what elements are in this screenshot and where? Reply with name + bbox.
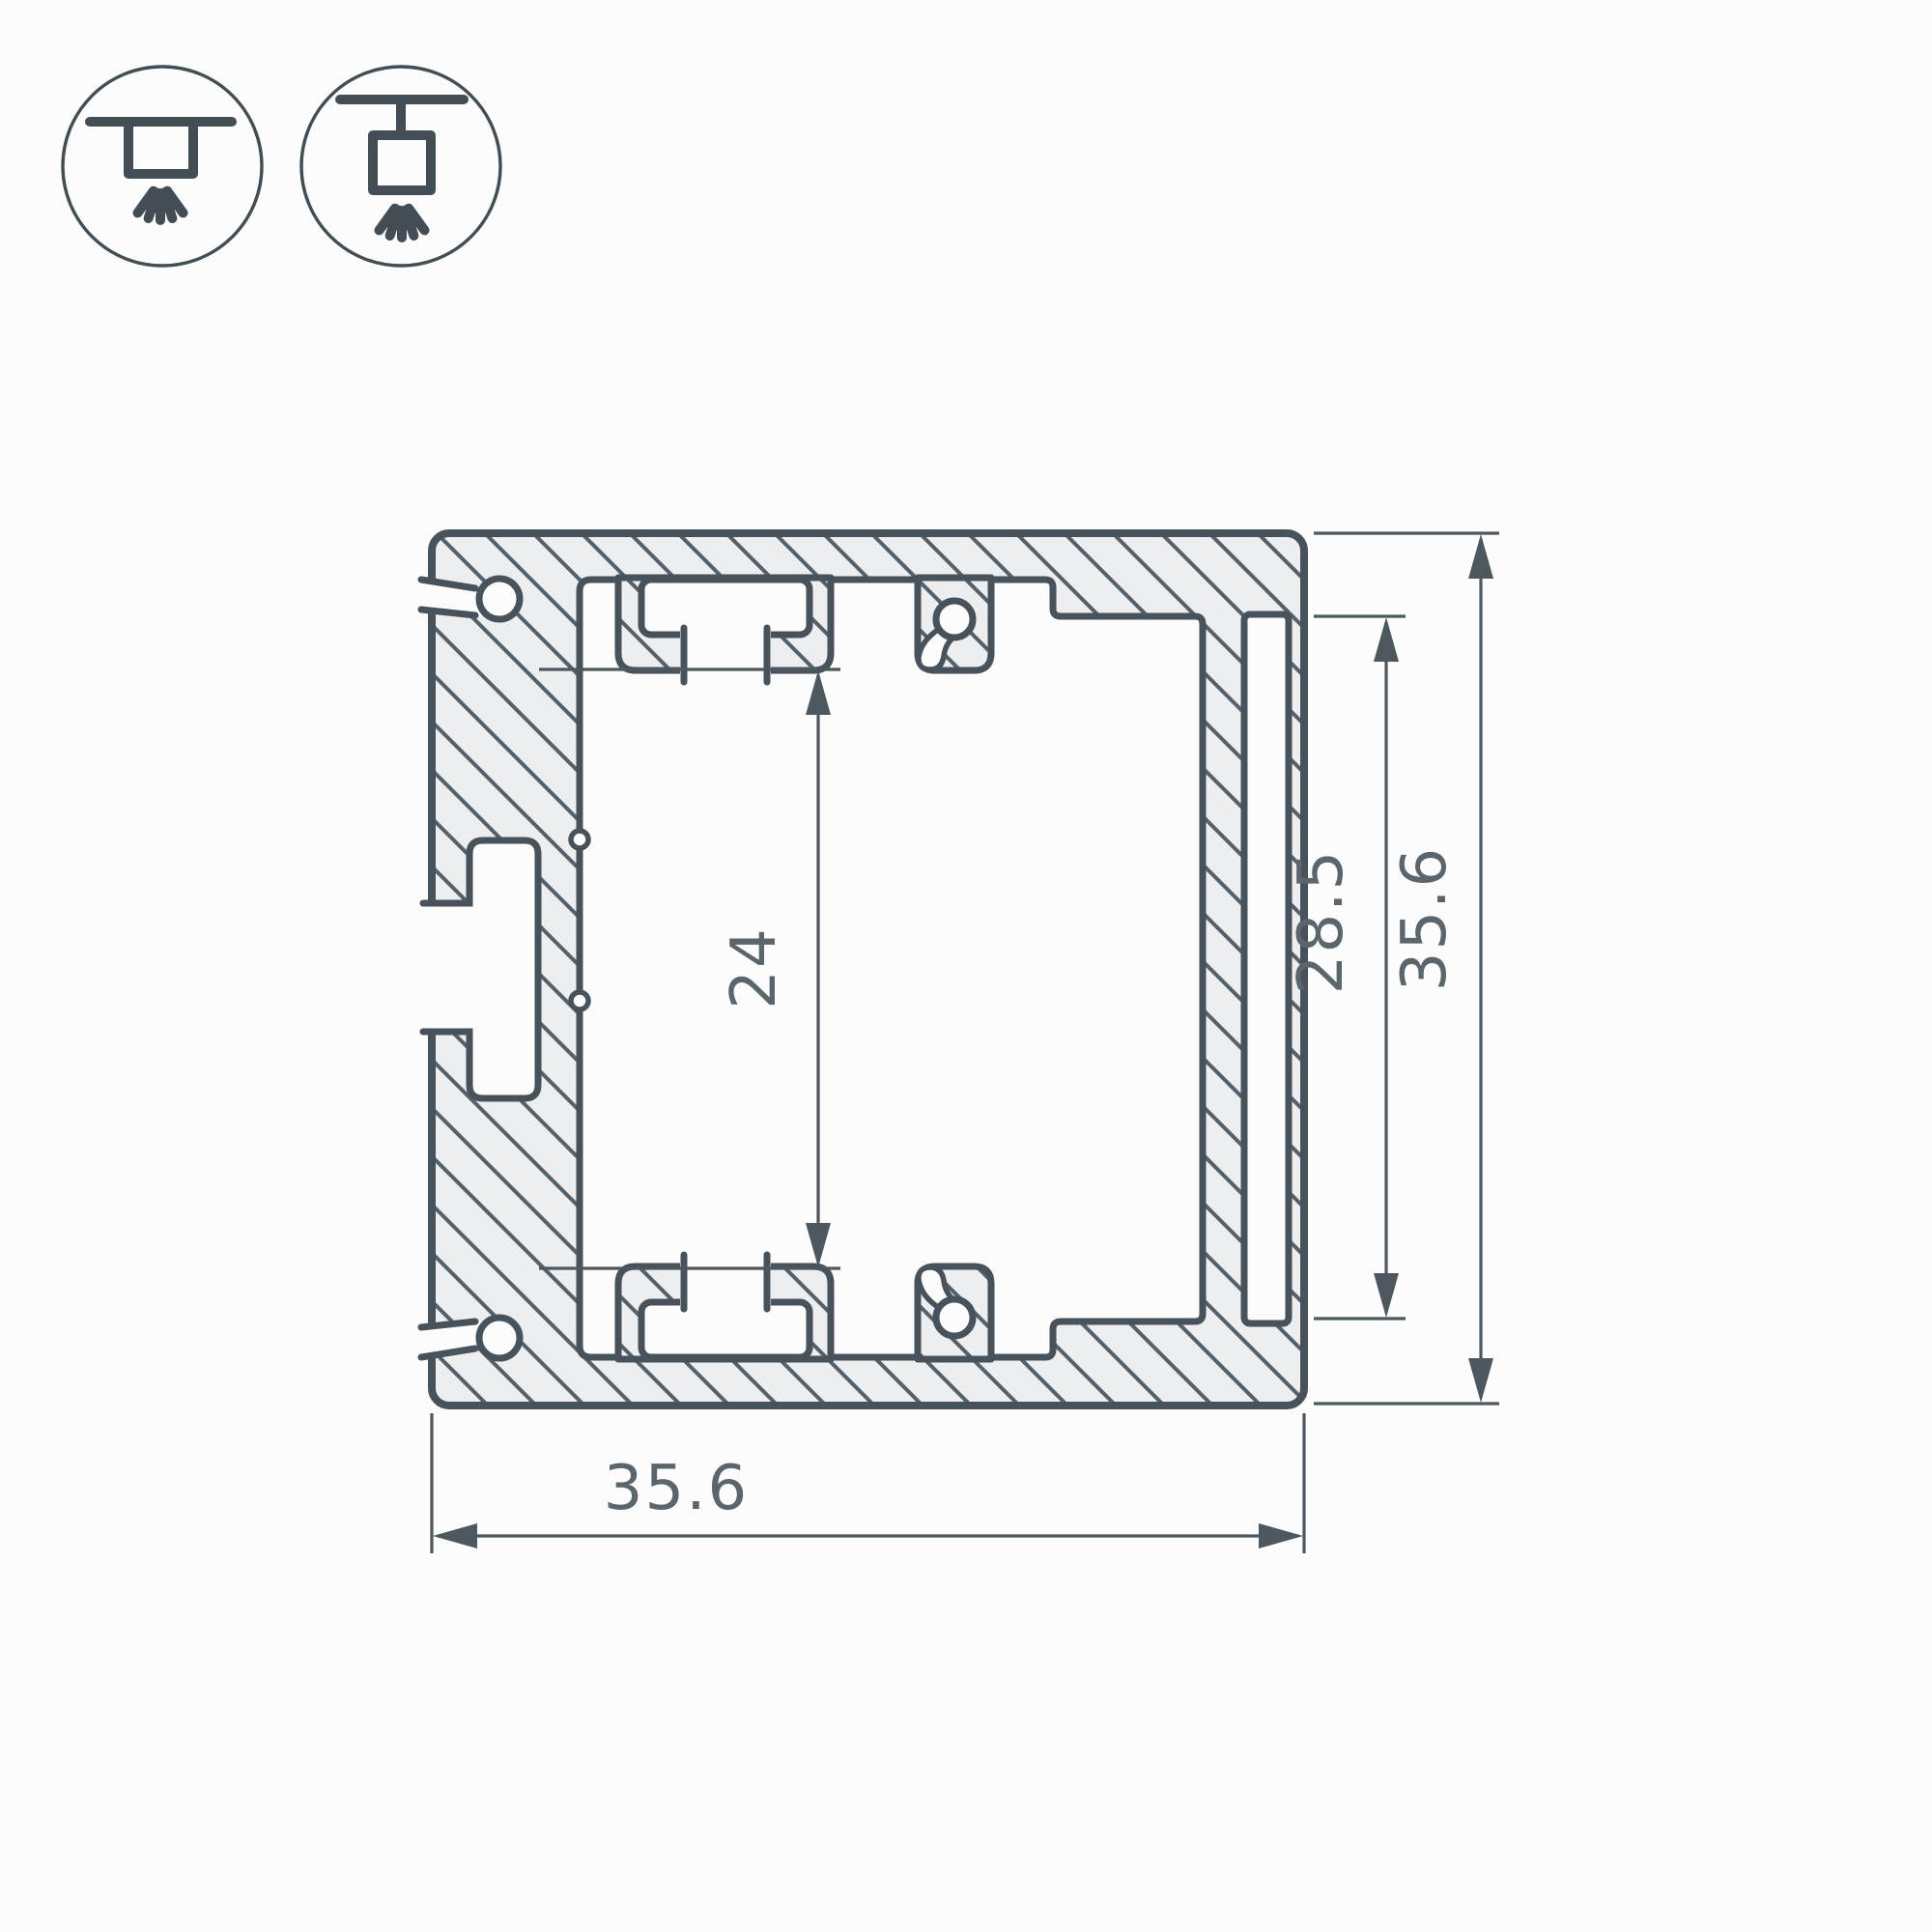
inner-face-nub bbox=[571, 992, 588, 1009]
technical-drawing-page: 24 28.5 35.6 35.6 bbox=[0, 0, 1932, 1932]
main-cavity bbox=[580, 580, 1203, 1357]
bottom-t-slot-chamber bbox=[641, 1302, 810, 1357]
top-t-slot-mouth bbox=[680, 630, 771, 684]
fixture-box bbox=[373, 135, 431, 190]
profile-cross-section bbox=[421, 533, 1304, 1406]
dimension-overall-width: 35.6 bbox=[432, 1413, 1304, 1553]
arrowhead-down bbox=[1468, 1358, 1493, 1403]
dimension-label: 35.6 bbox=[604, 1453, 750, 1524]
inner-face-nub bbox=[571, 831, 588, 848]
bottom-t-slot-mouth bbox=[680, 1253, 771, 1307]
arrowhead-right bbox=[1259, 1523, 1303, 1548]
dimension-label: 28.5 bbox=[1286, 849, 1357, 995]
bottom-screw-channel bbox=[936, 1299, 973, 1336]
extension-line bbox=[432, 1413, 1304, 1553]
arrowhead-up bbox=[1374, 617, 1399, 662]
dimension-label: 35.6 bbox=[1389, 846, 1461, 992]
light-rays bbox=[380, 209, 425, 238]
bottom-left-screw-channel bbox=[479, 1318, 520, 1358]
arrowhead-down bbox=[1374, 1273, 1399, 1318]
cover-groove bbox=[1244, 614, 1289, 1323]
arrowhead-up bbox=[1468, 534, 1493, 579]
recessed-mount-icon bbox=[63, 67, 262, 266]
fixture-box bbox=[128, 122, 193, 174]
icon-circle bbox=[63, 67, 262, 266]
technical-drawing: 24 28.5 35.6 35.6 bbox=[0, 0, 1932, 1932]
arrowhead-left bbox=[433, 1523, 477, 1548]
dimension-label: 24 bbox=[719, 926, 790, 1009]
top-screw-channel bbox=[936, 601, 973, 638]
light-rays bbox=[138, 191, 184, 220]
top-left-screw-channel bbox=[479, 579, 520, 619]
suspended-mount-icon bbox=[301, 67, 500, 266]
top-t-slot-chamber bbox=[641, 580, 810, 635]
